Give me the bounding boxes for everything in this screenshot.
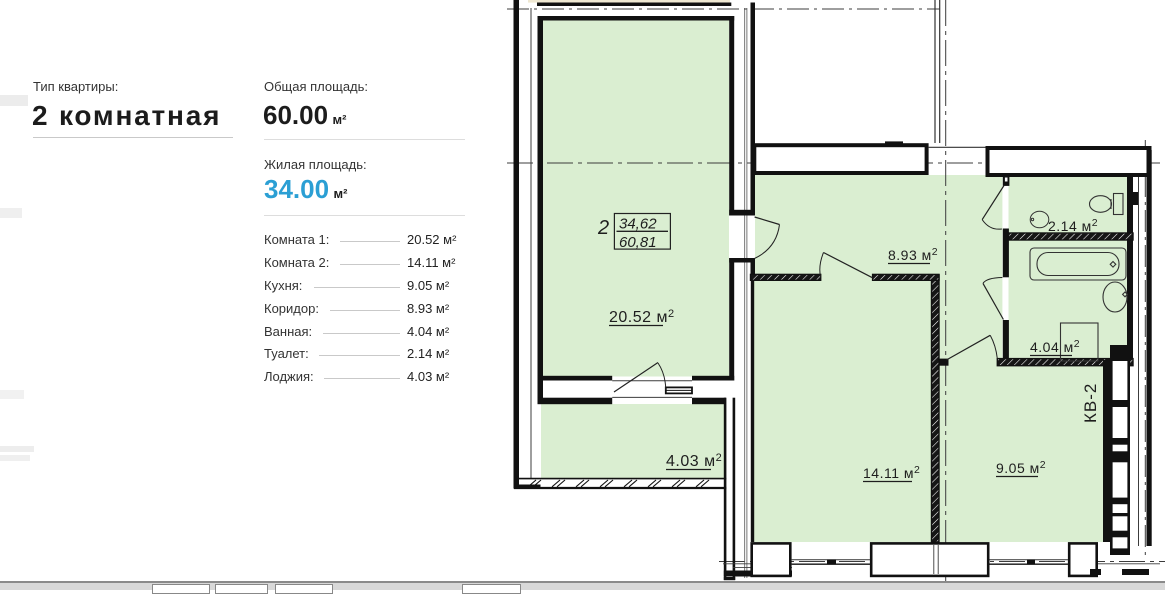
svg-text:14.11 м2: 14.11 м2	[863, 464, 920, 481]
svg-text:34,62: 34,62	[619, 216, 657, 233]
svg-text:20.52 м2: 20.52 м2	[609, 308, 675, 326]
svg-text:60,81: 60,81	[619, 234, 657, 251]
svg-text:4.04 м2: 4.04 м2	[1030, 338, 1080, 355]
svg-text:КВ-2: КВ-2	[1081, 383, 1100, 423]
svg-text:2.14 м2: 2.14 м2	[1048, 217, 1098, 234]
svg-text:9.05 м2: 9.05 м2	[996, 459, 1046, 476]
svg-text:2: 2	[597, 217, 609, 239]
svg-text:8.93 м2: 8.93 м2	[888, 246, 938, 263]
svg-text:4.03 м2: 4.03 м2	[666, 452, 722, 470]
